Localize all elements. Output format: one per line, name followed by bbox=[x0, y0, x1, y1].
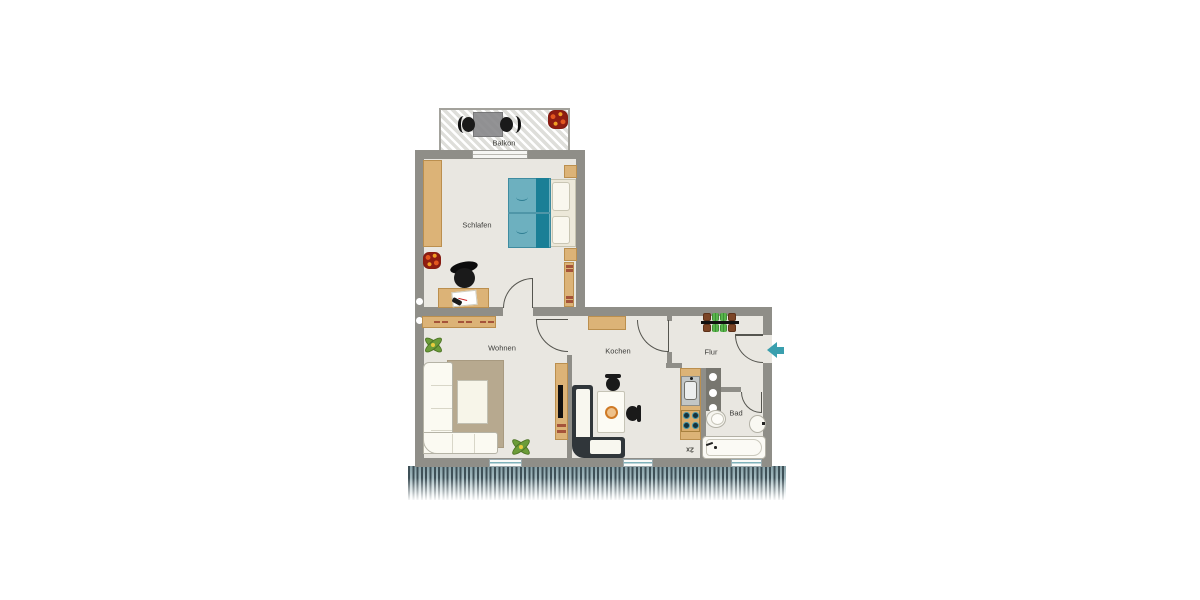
window-kitchen bbox=[623, 459, 653, 467]
floorplan-canvas: Balkon bbox=[0, 0, 1200, 600]
sofa-cushion-line bbox=[452, 434, 453, 453]
coat-rack-item bbox=[703, 313, 711, 321]
sideboard-handle bbox=[466, 321, 472, 324]
sideboard-handle bbox=[458, 321, 464, 324]
pipe-circle-1 bbox=[709, 373, 717, 381]
pipe-circle-2 bbox=[709, 389, 717, 397]
room-label-flur: Flur bbox=[705, 348, 718, 357]
room-label-balkon: Balkon bbox=[493, 139, 516, 148]
nightstand-bottom bbox=[564, 248, 577, 261]
sideboard-handle bbox=[434, 321, 440, 324]
sofa-cushion-line bbox=[474, 434, 475, 453]
entrance-arrow-icon bbox=[767, 342, 785, 358]
wall-pipe-dot-upper bbox=[416, 298, 423, 305]
balcony-chair-left bbox=[462, 117, 475, 132]
wall-right-outer-upper bbox=[763, 307, 772, 335]
stove-burner bbox=[683, 422, 690, 429]
stove-burner bbox=[692, 422, 699, 429]
room-label-bad: Bad bbox=[729, 409, 742, 418]
dining-chair-right-seat bbox=[626, 406, 639, 421]
garden-fringe-fade bbox=[408, 466, 786, 500]
desk-chair-seat bbox=[454, 268, 475, 288]
dining-chair-top-seat bbox=[606, 377, 620, 391]
balcony-flower-pot bbox=[548, 110, 568, 129]
balcony-door-window bbox=[472, 150, 528, 159]
stove-count-annotation: 2x bbox=[686, 446, 694, 453]
wall-mid-horizontal-right bbox=[533, 307, 772, 316]
coat-rack-item bbox=[703, 324, 711, 332]
pillow bbox=[552, 216, 570, 244]
plant bbox=[510, 437, 533, 457]
sofa-cushion-line bbox=[431, 385, 452, 386]
room-label-schlafen: Schlafen bbox=[462, 221, 491, 230]
coat-rack-item bbox=[712, 313, 719, 321]
balcony-table bbox=[473, 112, 503, 137]
stove-burner bbox=[692, 412, 699, 419]
sideboard-handle bbox=[488, 321, 494, 324]
tv-board-handle bbox=[557, 430, 566, 433]
bathtub-drain bbox=[714, 446, 717, 449]
tv-screen bbox=[558, 385, 563, 418]
dresser-handle bbox=[566, 296, 573, 299]
room-label-wohnen: Wohnen bbox=[488, 344, 516, 353]
washbasin-tap bbox=[762, 422, 765, 425]
balcony-chair-right bbox=[500, 117, 513, 132]
pillow bbox=[552, 182, 570, 211]
dresser-handle bbox=[566, 269, 573, 272]
wardrobe bbox=[423, 160, 442, 247]
plate bbox=[605, 406, 618, 419]
sideboard-handle bbox=[480, 321, 486, 324]
double-bed bbox=[508, 178, 577, 248]
wall-hall-bath bbox=[721, 387, 741, 392]
sofa-cushion-line bbox=[431, 430, 452, 431]
coat-rack-item bbox=[728, 313, 736, 321]
coat-rack-item bbox=[720, 313, 727, 321]
dresser-handle bbox=[566, 300, 573, 303]
bench-cushion bbox=[576, 389, 590, 439]
nightstand-top bbox=[564, 165, 577, 178]
coat-rack-item bbox=[712, 324, 719, 332]
dresser-handle bbox=[566, 265, 573, 268]
wall-bottom-outer bbox=[415, 458, 772, 467]
toilet-seat bbox=[711, 413, 724, 425]
coffee-table bbox=[457, 380, 488, 424]
sideboard-handle bbox=[442, 321, 448, 324]
room-label-kochen: Kochen bbox=[605, 347, 630, 356]
kitchen-sink-basin bbox=[684, 381, 697, 400]
window-living bbox=[489, 459, 522, 467]
kitchen-sideboard bbox=[588, 316, 626, 330]
bench-cushion bbox=[590, 440, 621, 454]
plant bbox=[423, 335, 444, 355]
window-bath bbox=[731, 459, 762, 467]
sofa-cushion-line bbox=[431, 408, 452, 409]
coat-rack-item bbox=[720, 324, 727, 332]
stove-burner bbox=[683, 412, 690, 419]
wall-bedroom-right bbox=[576, 150, 585, 316]
kitchen-faucet bbox=[690, 377, 693, 380]
tv-board-handle bbox=[557, 424, 566, 427]
coat-rack-item bbox=[728, 324, 736, 332]
sofa-horizontal bbox=[423, 432, 498, 454]
bedroom-flower-pot bbox=[423, 252, 441, 269]
wall-mid-horizontal-left bbox=[415, 307, 503, 316]
